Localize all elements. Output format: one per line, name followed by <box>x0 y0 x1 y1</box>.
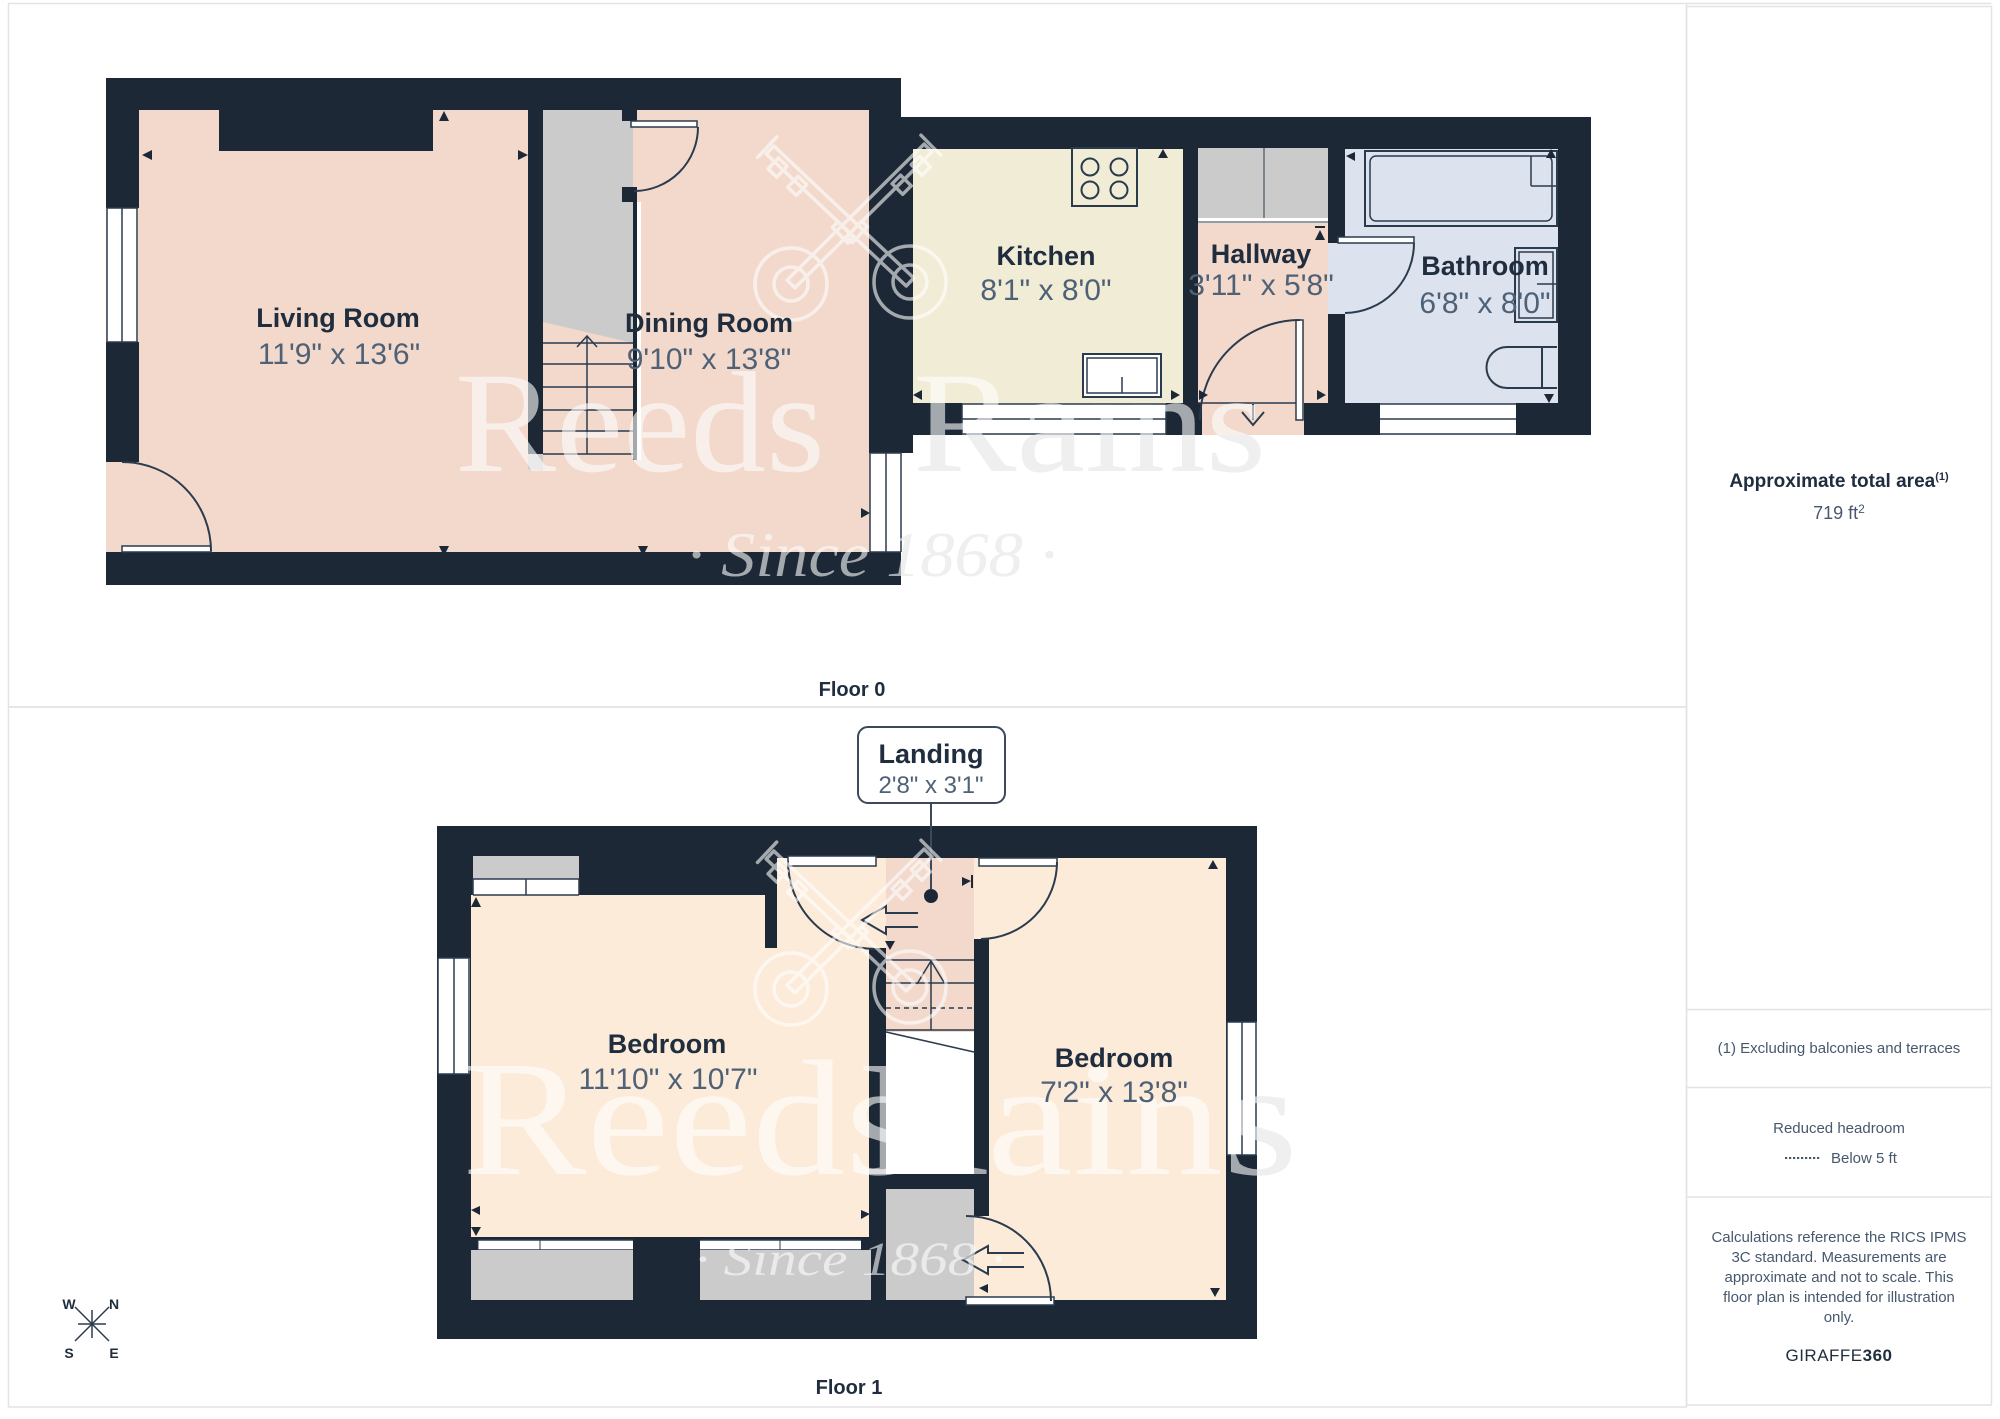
svg-text:Kitchen: Kitchen <box>996 241 1095 271</box>
svg-text:6'8" x 8'0": 6'8" x 8'0" <box>1419 287 1550 320</box>
svg-text:Reduced headroom: Reduced headroom <box>1773 1120 1905 1137</box>
svg-text:· Since 1868 ·: · Since 1868 · <box>687 519 1057 590</box>
svg-text:Approximate total area(1): Approximate total area(1) <box>1729 471 1949 492</box>
svg-text:Below 5 ft: Below 5 ft <box>1831 1150 1898 1167</box>
svg-text:2'8" x 3'1": 2'8" x 3'1" <box>879 772 984 799</box>
svg-text:8'1" x 8'0": 8'1" x 8'0" <box>980 274 1111 307</box>
svg-text:W: W <box>62 1296 76 1312</box>
svg-text:· Since 1868 ·: · Since 1868 · <box>695 1233 1005 1286</box>
svg-text:Floor 1: Floor 1 <box>816 1377 883 1399</box>
svg-text:11'9" x 13'6": 11'9" x 13'6" <box>258 338 420 371</box>
svg-text:floor plan is intended for ill: floor plan is intended for illustration <box>1723 1289 1955 1306</box>
svg-text:E: E <box>109 1345 118 1361</box>
svg-text:Floor 0: Floor 0 <box>819 679 886 701</box>
svg-text:Bathroom: Bathroom <box>1421 251 1549 281</box>
svg-text:GIRAFFE360: GIRAFFE360 <box>1785 1346 1892 1365</box>
svg-text:Dining Room: Dining Room <box>625 308 793 338</box>
svg-text:N: N <box>109 1296 119 1312</box>
svg-text:S: S <box>64 1345 73 1361</box>
svg-text:(1) Excluding balconies and te: (1) Excluding balconies and terraces <box>1718 1040 1961 1057</box>
svg-text:Calculations reference the RIC: Calculations reference the RICS IPMS <box>1711 1229 1966 1246</box>
svg-text:Rains: Rains <box>913 344 1266 503</box>
svg-text:Hallway: Hallway <box>1211 239 1312 269</box>
svg-text:Bedroom: Bedroom <box>608 1029 727 1059</box>
svg-text:Bedroom: Bedroom <box>1055 1043 1174 1073</box>
svg-text:Living Room: Living Room <box>256 303 420 333</box>
svg-text:approximate and not to scale.: approximate and not to scale. This <box>1724 1269 1953 1286</box>
svg-text:7'2" x 13'8": 7'2" x 13'8" <box>1040 1076 1188 1109</box>
svg-text:719 ft2: 719 ft2 <box>1813 502 1865 523</box>
svg-text:11'10" x 10'7": 11'10" x 10'7" <box>579 1063 758 1096</box>
svg-text:Landing: Landing <box>879 739 984 769</box>
svg-text:3'11" x 5'8": 3'11" x 5'8" <box>1188 269 1334 302</box>
svg-text:9'10" x 13'8": 9'10" x 13'8" <box>627 343 792 376</box>
svg-text:only.: only. <box>1824 1309 1855 1326</box>
svg-text:3C standard. Measurements are: 3C standard. Measurements are <box>1731 1249 1946 1266</box>
